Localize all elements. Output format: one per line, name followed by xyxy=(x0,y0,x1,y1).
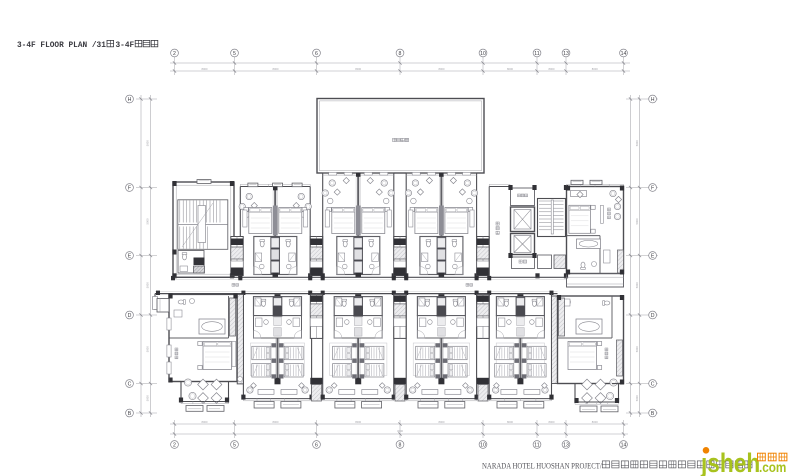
svg-text:8000: 8000 xyxy=(202,67,208,71)
svg-text:5000: 5000 xyxy=(146,282,150,288)
svg-text:11: 11 xyxy=(534,442,539,448)
svg-text:6: 6 xyxy=(315,51,318,57)
svg-text:5000: 5000 xyxy=(146,346,150,352)
svg-text:B: B xyxy=(128,411,132,417)
svg-text:D: D xyxy=(128,313,132,319)
svg-text:8000: 8000 xyxy=(549,420,555,424)
svg-text:5000: 5000 xyxy=(635,282,639,288)
svg-text:8000: 8000 xyxy=(273,420,279,424)
svg-text:8: 8 xyxy=(399,51,402,57)
svg-text:2: 2 xyxy=(173,51,176,57)
svg-text:E: E xyxy=(651,253,655,259)
svg-text:F: F xyxy=(651,185,654,191)
svg-text:6: 6 xyxy=(315,442,318,448)
svg-text:5000: 5000 xyxy=(146,218,150,224)
svg-text:14: 14 xyxy=(621,51,627,57)
svg-text:NARADA HOTEL HUOSHAN PROJECT/: NARADA HOTEL HUOSHAN PROJECT/ xyxy=(482,461,603,471)
svg-text:E: E xyxy=(128,253,132,259)
svg-text:5: 5 xyxy=(233,51,236,57)
svg-text:.com: .com xyxy=(759,459,786,475)
svg-text:5: 5 xyxy=(233,442,236,448)
svg-text:8000: 8000 xyxy=(273,67,279,71)
svg-text:3-4F FLOOR PLAN /31: 3-4F FLOOR PLAN /31 xyxy=(17,42,106,50)
svg-text:4000: 4000 xyxy=(397,429,403,433)
svg-text:8000: 8000 xyxy=(592,420,598,424)
svg-text:5000: 5000 xyxy=(146,395,150,401)
svg-text:14: 14 xyxy=(621,442,627,448)
svg-text:8000: 8000 xyxy=(202,420,208,424)
svg-text:8000: 8000 xyxy=(592,67,598,71)
svg-text:8000: 8000 xyxy=(355,67,361,71)
svg-text:8000: 8000 xyxy=(439,67,445,71)
svg-text:H: H xyxy=(128,97,132,103)
svg-text:5000: 5000 xyxy=(635,395,639,401)
svg-text:C: C xyxy=(128,381,132,387)
svg-text:13: 13 xyxy=(563,442,569,448)
svg-text:5000: 5000 xyxy=(146,140,150,146)
svg-text:8: 8 xyxy=(399,442,402,448)
svg-text:10: 10 xyxy=(480,51,486,57)
svg-text:8000: 8000 xyxy=(439,420,445,424)
svg-text:8000: 8000 xyxy=(355,420,361,424)
svg-text:ȷsheh: ȷsheh xyxy=(700,448,760,476)
svg-text:8000: 8000 xyxy=(549,67,555,71)
svg-text:B: B xyxy=(651,411,655,417)
svg-text:8000: 8000 xyxy=(507,67,513,71)
svg-text:F: F xyxy=(128,185,131,191)
svg-text:10: 10 xyxy=(480,442,486,448)
svg-text:5000: 5000 xyxy=(635,218,639,224)
svg-text:C: C xyxy=(651,381,655,387)
svg-text:5000: 5000 xyxy=(635,140,639,146)
svg-text:D: D xyxy=(651,313,655,319)
svg-text:11: 11 xyxy=(534,51,539,57)
svg-text:2: 2 xyxy=(173,442,176,448)
svg-text:H: H xyxy=(651,97,655,103)
svg-text:5000: 5000 xyxy=(635,346,639,352)
svg-text:3-4F: 3-4F xyxy=(116,42,135,50)
svg-text:13: 13 xyxy=(563,51,569,57)
svg-text:8000: 8000 xyxy=(507,420,513,424)
